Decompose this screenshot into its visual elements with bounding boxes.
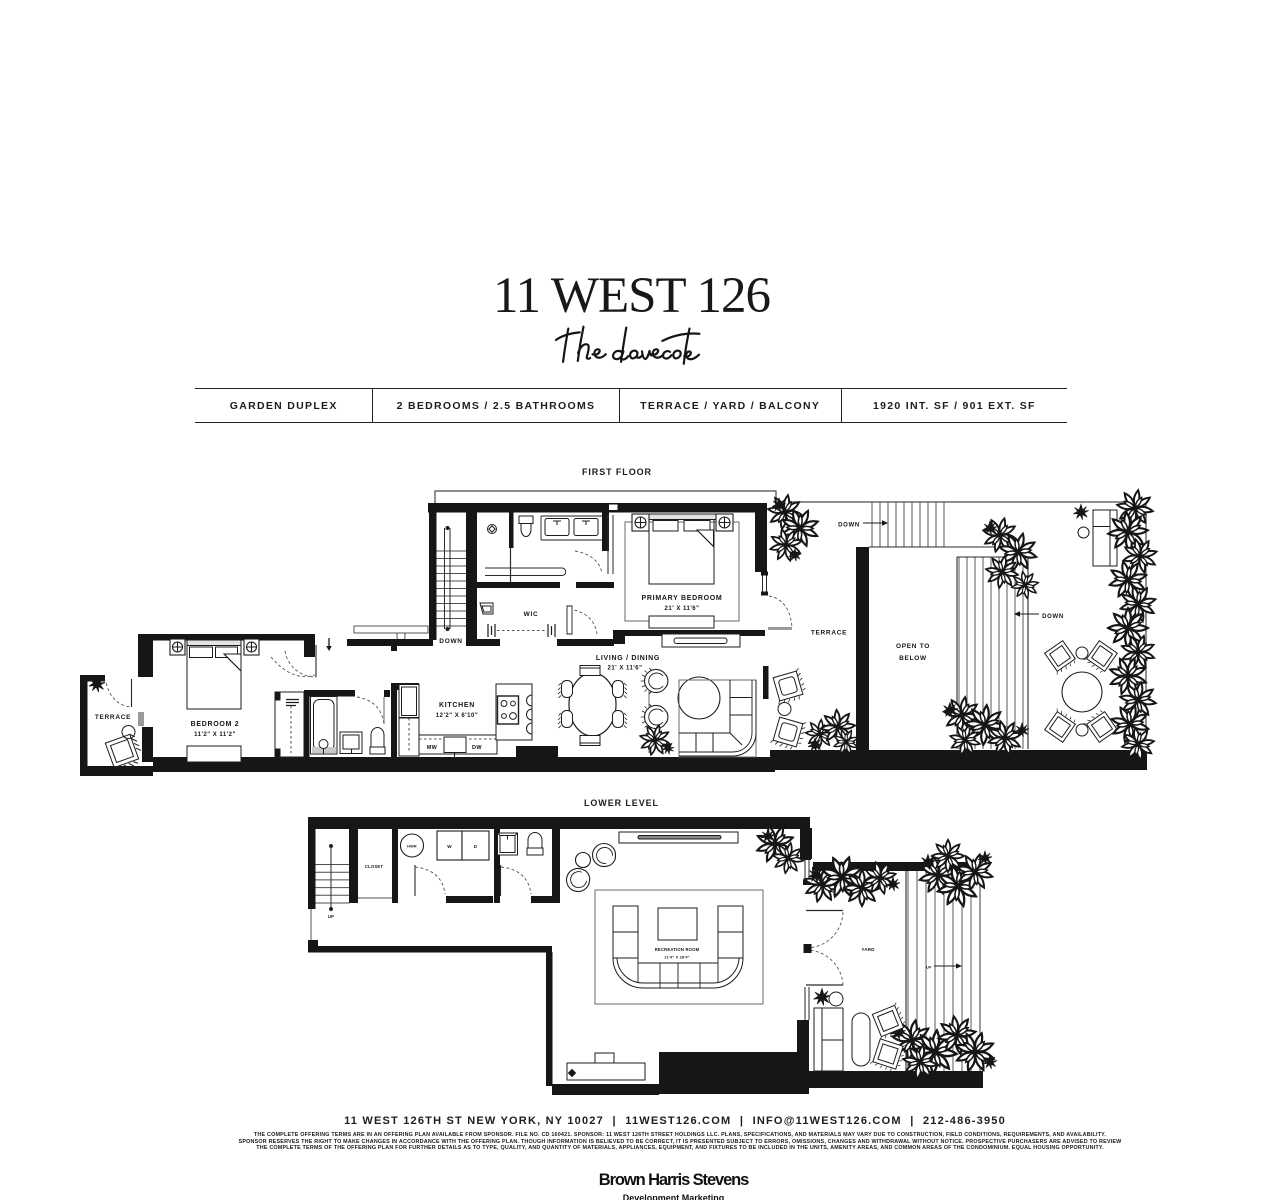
svg-text:12'2" X 6'10": 12'2" X 6'10"	[436, 713, 478, 719]
svg-text:BEDROOM 2: BEDROOM 2	[191, 721, 240, 728]
svg-text:LIVING / DINING: LIVING / DINING	[596, 655, 660, 662]
svg-text:11'2" X 11'2": 11'2" X 11'2"	[194, 732, 236, 738]
svg-text:CLOSET: CLOSET	[365, 864, 383, 869]
svg-text:21' X 11'6": 21' X 11'6"	[665, 606, 700, 612]
svg-text:UP: UP	[926, 966, 932, 970]
svg-text:RECREATION ROOM: RECREATION ROOM	[655, 947, 700, 952]
svg-text:WIC: WIC	[524, 611, 539, 618]
svg-text:TERRACE: TERRACE	[811, 630, 847, 637]
svg-text:D: D	[474, 844, 478, 849]
svg-text:YARD: YARD	[861, 947, 875, 952]
svg-text:21'4" X 28'4": 21'4" X 28'4"	[664, 956, 689, 960]
svg-text:PRIMARY BEDROOM: PRIMARY BEDROOM	[642, 595, 723, 602]
svg-text:DOWN: DOWN	[439, 638, 462, 645]
svg-text:KITCHEN: KITCHEN	[439, 702, 475, 709]
svg-text:MW: MW	[427, 745, 438, 751]
svg-text:DOWN: DOWN	[1042, 614, 1064, 620]
svg-text:HWR: HWR	[407, 845, 417, 849]
svg-text:DOWN: DOWN	[838, 523, 860, 529]
svg-text:21' X 11'6": 21' X 11'6"	[608, 666, 643, 672]
svg-text:W: W	[447, 844, 452, 849]
svg-text:DW: DW	[472, 745, 482, 751]
svg-text:BELOW: BELOW	[899, 655, 927, 662]
svg-text:UP: UP	[328, 914, 334, 919]
svg-text:OPEN TO: OPEN TO	[896, 643, 930, 650]
svg-text:TERRACE: TERRACE	[95, 714, 131, 721]
